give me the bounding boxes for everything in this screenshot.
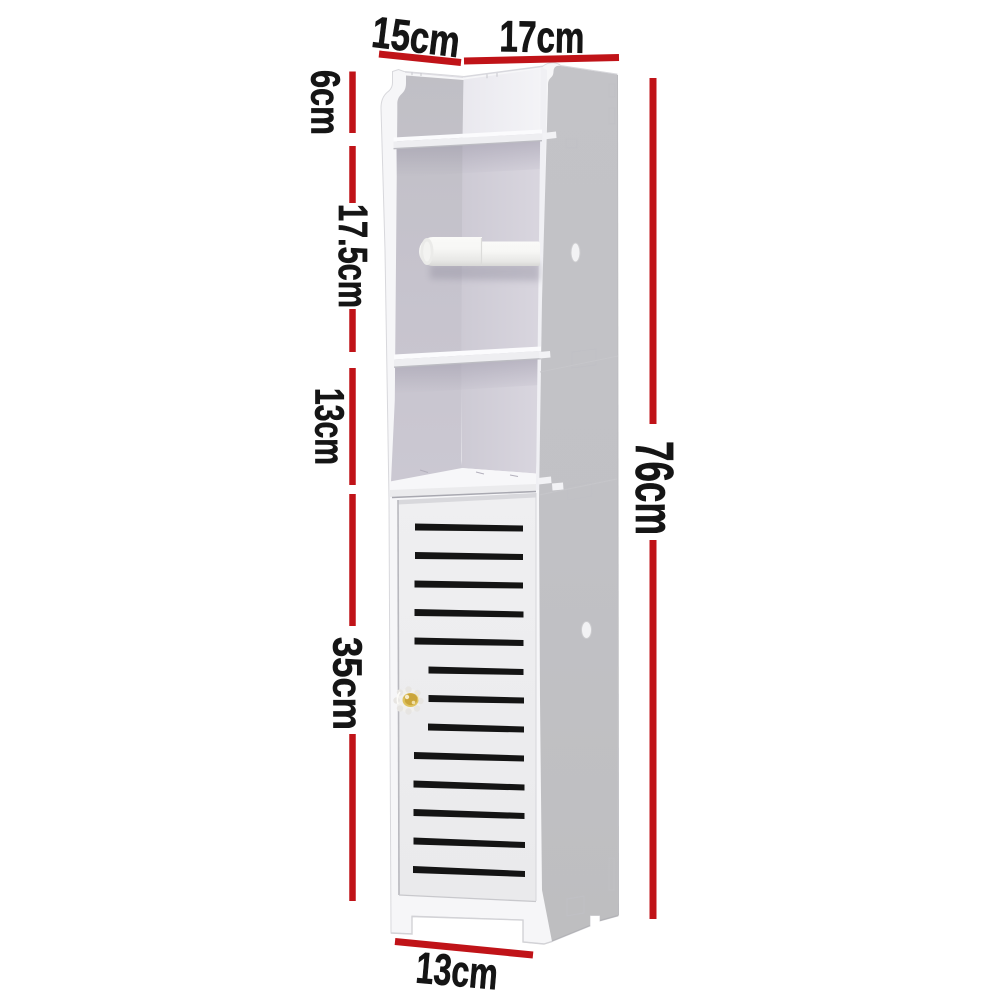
svg-text:13cm: 13cm [307,388,353,465]
svg-text:17.5cm: 17.5cm [330,204,376,308]
svg-text:13cm: 13cm [414,944,500,1000]
svg-text:17cm: 17cm [499,12,585,62]
svg-text:76cm: 76cm [624,441,684,535]
svg-text:15cm: 15cm [369,8,462,67]
svg-text:6cm: 6cm [303,70,349,135]
svg-text:35cm: 35cm [325,637,371,730]
